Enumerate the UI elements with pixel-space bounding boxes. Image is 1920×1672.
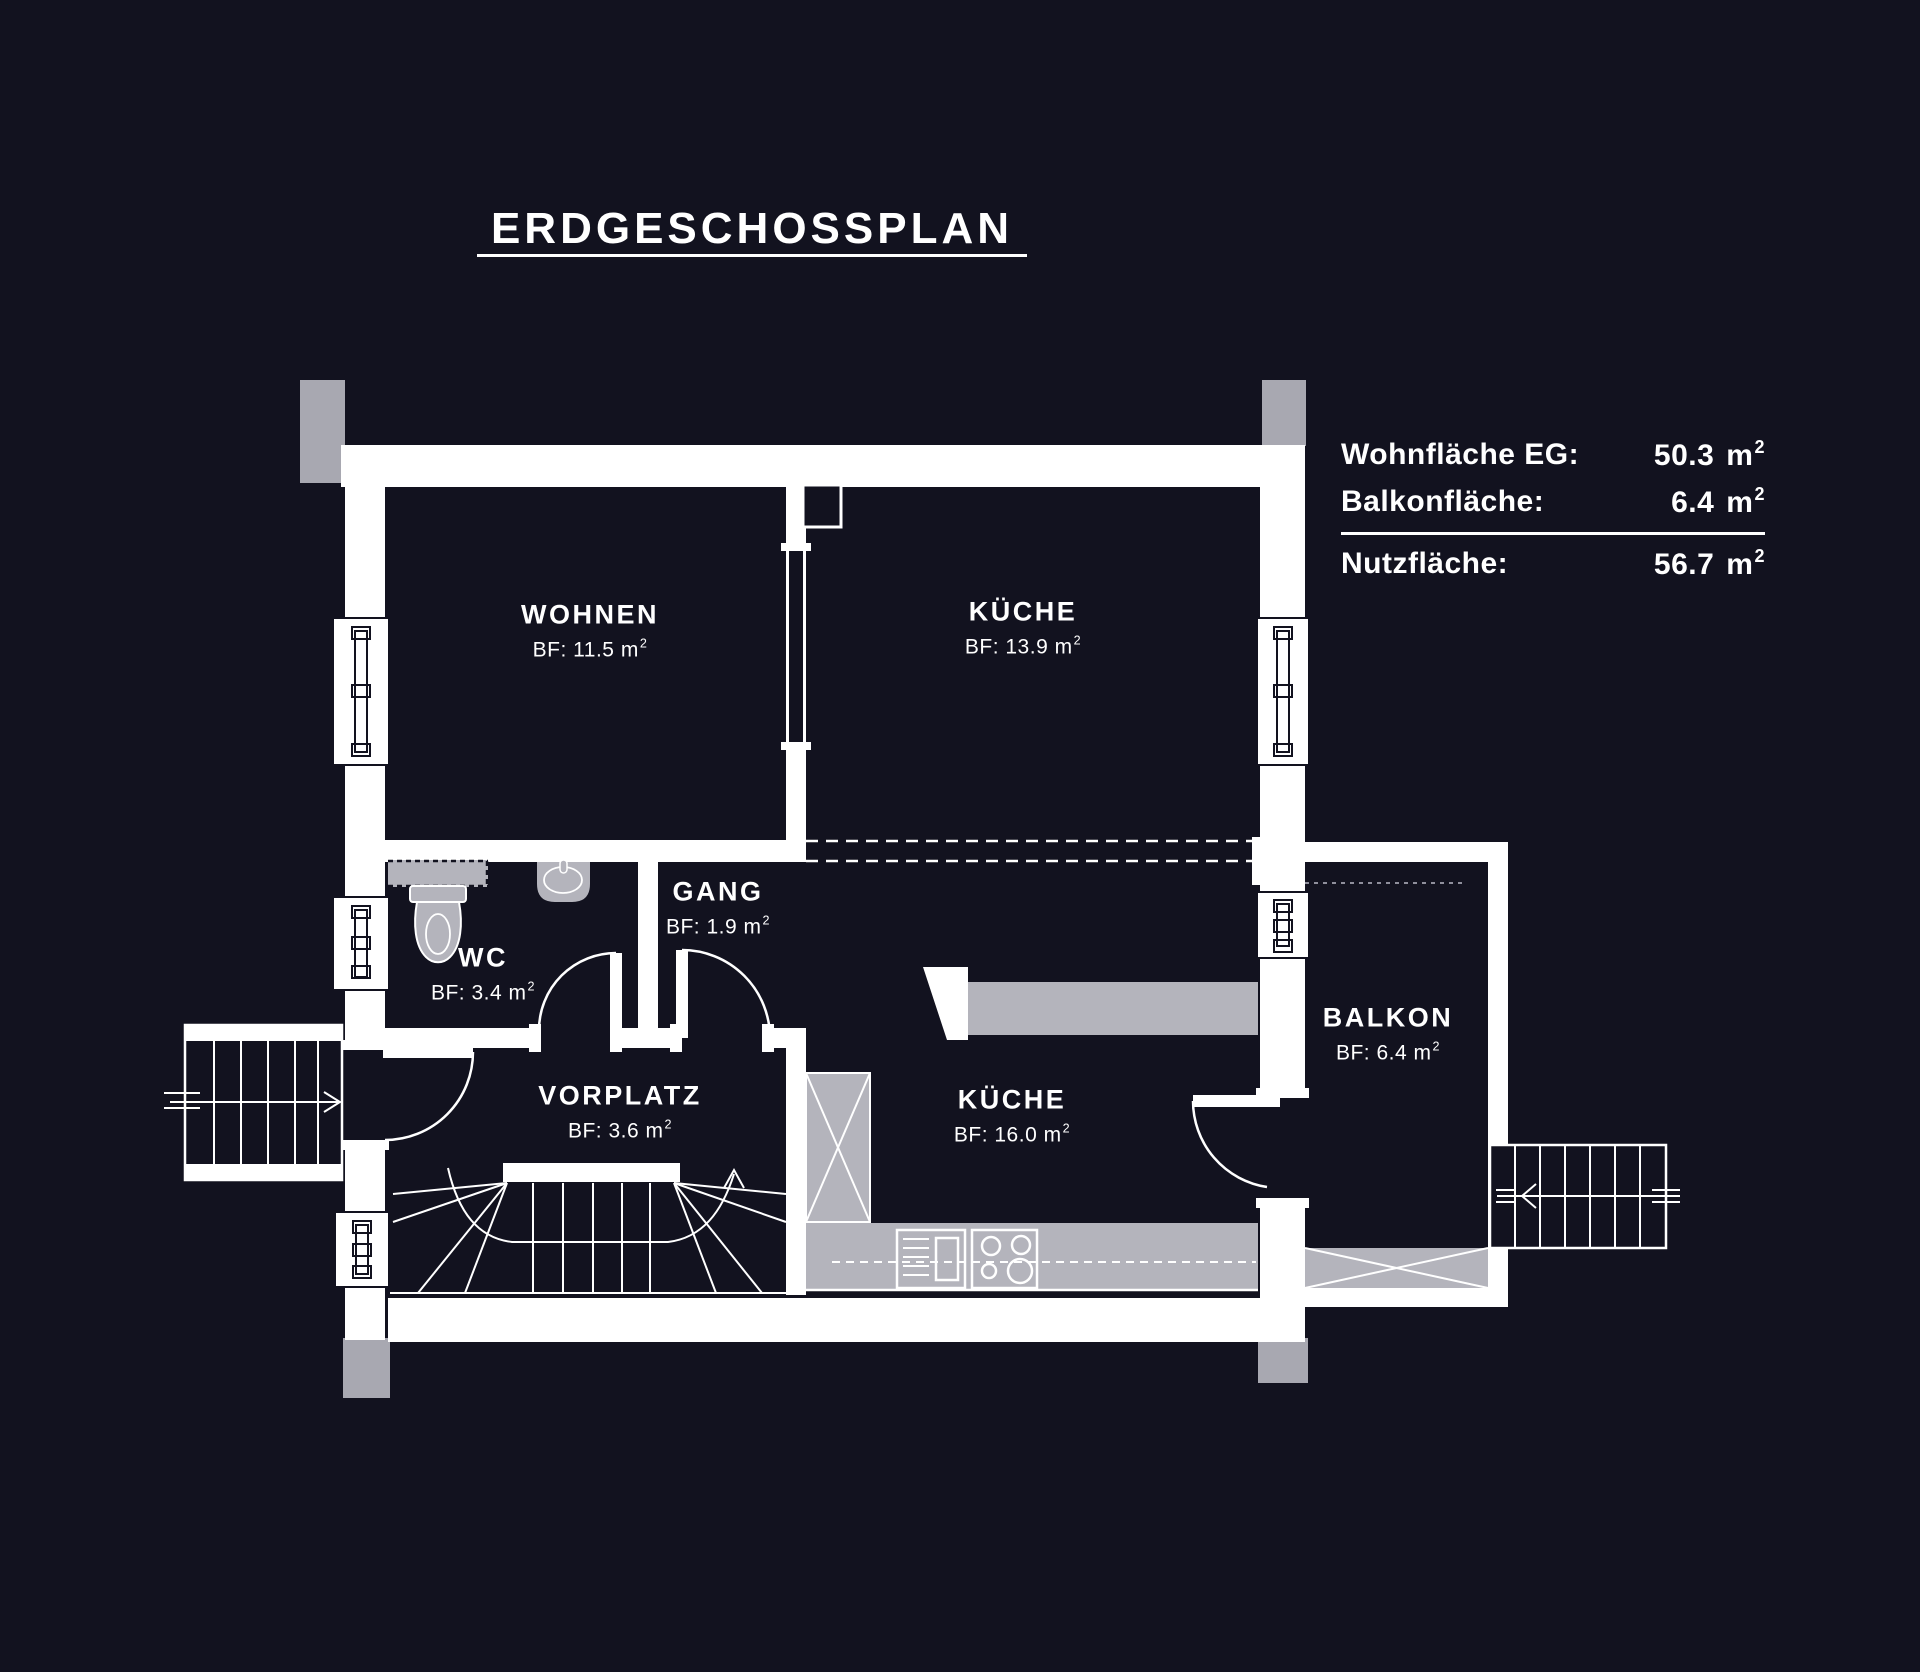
room-label-gang: GANG BF: 1.9 m2 [666,877,770,940]
wall-bottom [388,1298,1262,1342]
balcony-walls [1303,842,1508,1307]
entrance-opening [345,1050,385,1140]
shaft-icon [806,1073,870,1222]
balcony-opening [1260,1098,1305,1198]
chimney-icon [803,485,841,527]
column-bottom-left [343,1338,390,1398]
room-label-kueche-unten: KÜCHE BF: 16.0 m2 [954,1085,1070,1148]
legend-divider [1341,532,1765,535]
window-icon [333,897,389,990]
kitchen-counter [806,1223,1258,1290]
legend-row-wohnflaeche: Wohnfläche EG: 50.3m2 [1341,438,1765,473]
room-label-balkon: BALKON BF: 6.4 m2 [1323,1003,1454,1066]
legend-label: Wohnfläche EG: [1341,438,1579,473]
column-top-right [1262,380,1306,446]
legend-value: 56.7m2 [1654,547,1765,582]
window-icon [1257,618,1309,765]
legend-value: 50.3m2 [1654,438,1765,473]
column-bottom-right [1258,1338,1308,1383]
wc-door [539,953,622,1030]
window-icon [333,618,389,765]
sink-icon [537,860,590,902]
window-icon [1257,892,1309,958]
title-underline [477,254,1027,257]
room-label-wc: WC BF: 3.4 m2 [431,943,535,1006]
room-label-wohnen: WOHNEN BF: 11.5 m2 [521,600,659,663]
wc-shelf [388,860,488,887]
window-icon [335,1212,389,1287]
legend-row-nutzflaeche: Nutzfläche: 56.7m2 [1341,547,1765,582]
balcony-hatch [1305,1248,1488,1288]
wall-top [341,445,1305,487]
exterior-stair [164,1025,342,1180]
column-top-left [300,380,345,483]
legend-label: Balkonfläche: [1341,485,1544,520]
room-label-vorplatz: VORPLATZ BF: 3.6 m2 [538,1081,702,1144]
legend-label: Nutzfläche: [1341,547,1508,582]
interior-stair [390,1163,786,1293]
kitchen-peninsula [923,967,1258,1040]
passage-opening [781,543,811,750]
legend-value: 6.4m2 [1671,485,1765,520]
legend-row-balkonflaeche: Balkonfläche: 6.4m2 [1341,485,1765,520]
page-title: ERDGESCHOSSPLAN [491,204,1013,254]
room-label-kueche-oben: KÜCHE BF: 13.9 m2 [965,597,1081,660]
balcony-stair [1490,1145,1680,1248]
floor-plan-page: ERDGESCHOSSPLAN Wohnfläche EG: 50.3m2 Ba… [0,0,1920,1672]
entrance-door [383,1046,473,1140]
gang-door [676,950,770,1038]
